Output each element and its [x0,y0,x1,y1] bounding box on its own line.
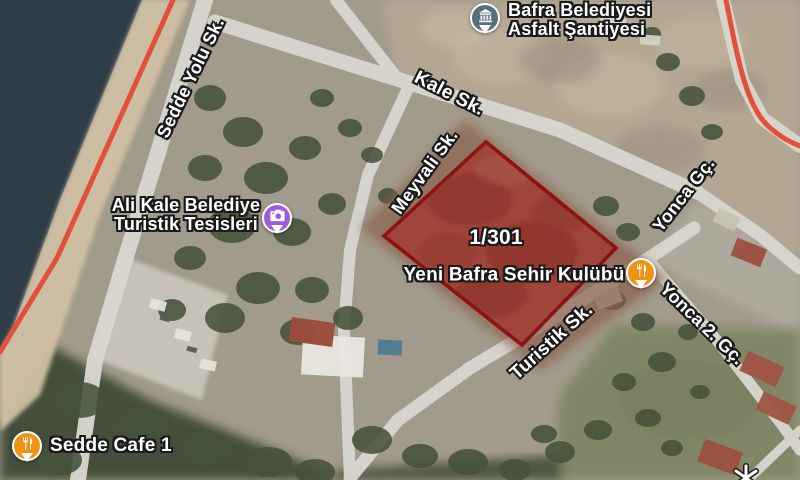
parcel-number-label: 1/301 [469,226,523,250]
restaurant-pin-yeni-bafra[interactable] [626,258,656,288]
government-building-pin[interactable] [470,3,500,33]
poi-label-bafra-belediyesi[interactable]: Bafra Belediyesi Asfalt Şantiyesi [508,1,651,39]
satellite-map[interactable]: Bafra Belediyesi Asfalt Şantiyesi Ali Ka… [0,0,800,480]
poi-label-line: Asfalt Şantiyesi [508,20,651,39]
poi-label-line: Ali Kale Belediye [105,196,267,215]
government-building-icon [477,7,494,29]
poi-label-yeni-bafra[interactable]: Yeni Bafra Sehir Kulübü [403,266,624,285]
poi-label-line: Bafra Belediyesi [508,1,651,20]
poi-label-line: Turistik Tesisleri [105,215,267,234]
restaurant-pin-sedde-cafe[interactable] [12,431,42,461]
restaurant-icon [20,436,35,456]
poi-label-ali-kale[interactable]: Ali Kale Belediye Turistik Tesisleri [105,196,267,234]
satellite-imagery [0,0,800,480]
swimming-pool [378,339,403,355]
poi-label-sedde-cafe[interactable]: Sedde Cafe 1 [50,436,172,455]
camera-icon [269,207,286,229]
restaurant-icon [634,263,649,283]
